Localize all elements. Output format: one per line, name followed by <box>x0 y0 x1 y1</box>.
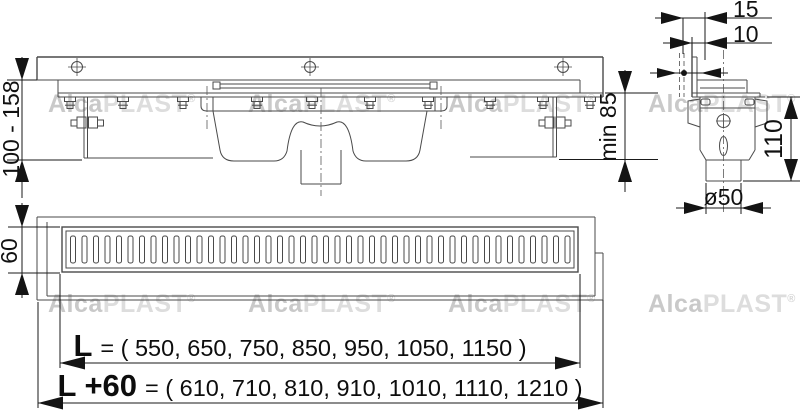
grate-slot <box>347 236 352 263</box>
grate-slot <box>496 236 501 263</box>
watermark <box>648 290 795 318</box>
grate-slot <box>450 236 455 263</box>
grate-slot <box>416 236 421 263</box>
grate-slot <box>485 236 490 263</box>
grate-slot <box>312 236 317 263</box>
grate-slot <box>335 236 340 263</box>
grate-width-label: 60 <box>0 238 22 264</box>
wall-gap-outer-label: 15 <box>733 0 759 22</box>
grate-slot <box>301 236 306 263</box>
grate-slot <box>232 236 237 263</box>
wall-gap-inner-label: 10 <box>733 21 759 47</box>
length-l60-label: L +60= ( 610, 710, 810, 910, 1010, 1110,… <box>57 368 582 403</box>
grate-frame-inner <box>66 231 574 268</box>
grate-slot <box>289 236 294 263</box>
wall-fixing-holes <box>68 58 572 76</box>
grate-slot <box>266 236 271 263</box>
watermark <box>48 290 195 318</box>
grate-slot <box>439 236 444 263</box>
grate-slot <box>243 236 248 263</box>
grate-slot <box>117 236 122 263</box>
watermark <box>448 290 595 318</box>
top-view <box>37 217 603 300</box>
grate-slot <box>519 236 524 263</box>
dim-wall-10: 10 <box>663 21 772 49</box>
trap-height-label: 110 <box>760 119 788 159</box>
grate-slot <box>370 236 375 263</box>
grate-slots <box>71 236 571 263</box>
grate-slot <box>174 236 179 263</box>
watermark <box>648 90 795 118</box>
dim-installation-height: 100 - 158 <box>0 57 82 198</box>
installation-height-label: 100 - 158 <box>0 80 24 177</box>
technical-drawing-canvas: AlcaPLAST® <box>0 0 800 410</box>
grate-slot <box>163 236 168 263</box>
drawing-page: AlcaPLAST® <box>0 0 800 410</box>
min-depth-label: min 85 <box>595 92 621 161</box>
grate-slot <box>393 236 398 263</box>
watermark-layer <box>48 90 795 318</box>
grate-slot <box>324 236 329 263</box>
grate-slot <box>404 236 409 263</box>
front-grate-edge <box>213 82 437 89</box>
outlet-diameter-label: ø50 <box>704 184 744 210</box>
grate-slot <box>554 236 559 263</box>
grate-slot <box>209 236 214 263</box>
watermark <box>48 90 195 118</box>
grate-slot <box>140 236 145 263</box>
grate-slot <box>71 236 76 263</box>
dim-min-depth: min 85 <box>559 70 658 192</box>
tile-surface-pointer <box>650 68 728 78</box>
grate-slot <box>197 236 202 263</box>
grate-slot <box>381 236 386 263</box>
grate-slot <box>128 236 133 263</box>
length-l-label: L= ( 550, 650, 750, 850, 950, 1050, 1150… <box>73 328 526 363</box>
front-view <box>37 57 603 196</box>
grate-slot <box>220 236 225 263</box>
grate-slot <box>531 236 536 263</box>
grate-slot <box>473 236 478 263</box>
grate-slot <box>358 236 363 263</box>
grate-slot <box>151 236 156 263</box>
watermark <box>448 90 595 118</box>
grate-slot <box>94 236 99 263</box>
grate-slot <box>427 236 432 263</box>
grate-slot <box>542 236 547 263</box>
grate-slot <box>508 236 513 263</box>
dim-outlet-diameter: ø50 <box>676 183 771 214</box>
grate-slot <box>186 236 191 263</box>
grate-slot <box>82 236 87 263</box>
grate-slot <box>462 236 467 263</box>
watermark <box>248 290 395 318</box>
grate-slot <box>278 236 283 263</box>
grate-slot <box>565 236 570 263</box>
dim-length-l: L= ( 550, 650, 750, 850, 950, 1050, 1150… <box>60 274 580 370</box>
grate-slot <box>105 236 110 263</box>
grate-slot <box>255 236 260 263</box>
